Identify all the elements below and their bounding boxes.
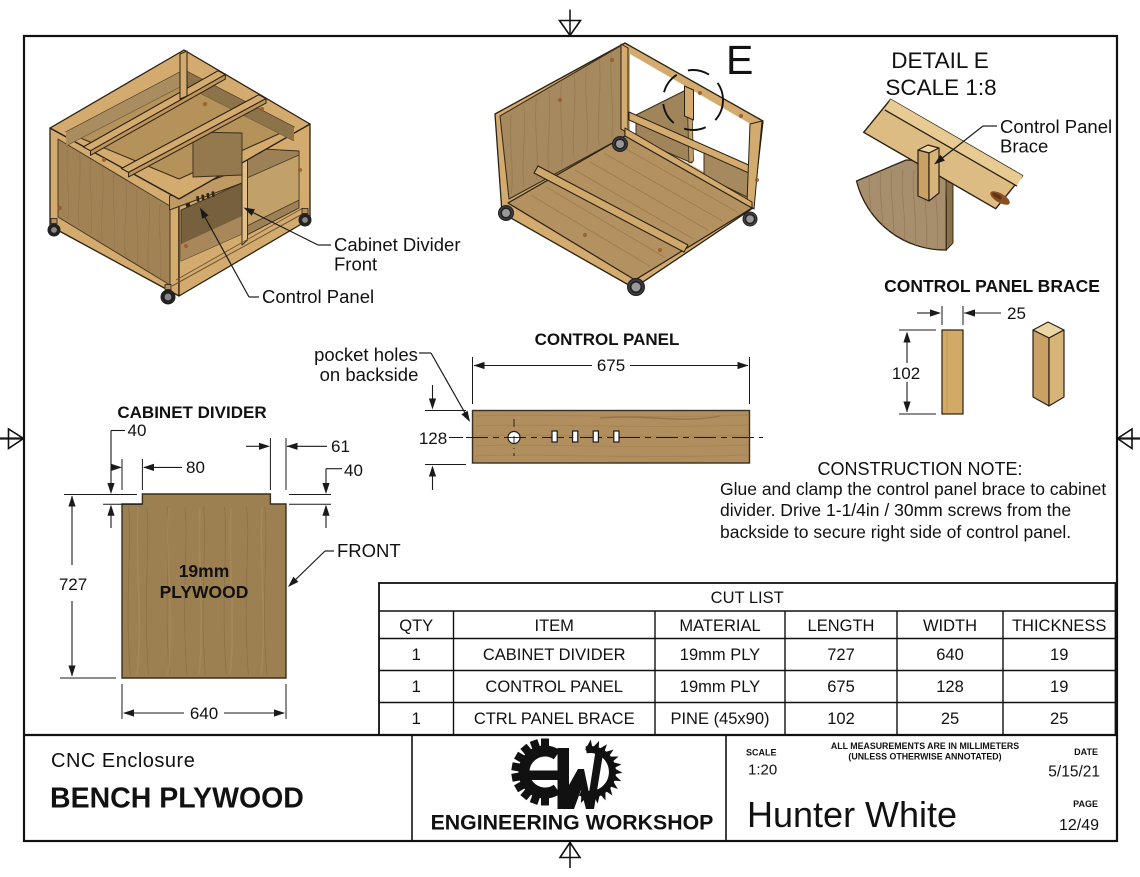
svg-text:SCALE: SCALE xyxy=(746,748,777,758)
svg-text:19: 19 xyxy=(1050,646,1068,664)
svg-text:25: 25 xyxy=(1007,304,1026,323)
svg-text:CONTROL PANEL: CONTROL PANEL xyxy=(535,330,680,349)
svg-text:FRONT: FRONT xyxy=(337,540,401,561)
svg-text:1: 1 xyxy=(412,710,421,728)
svg-text:Hunter White: Hunter White xyxy=(747,794,957,835)
svg-text:40: 40 xyxy=(344,461,363,480)
svg-text:backside to secure right side: backside to secure right side of control… xyxy=(720,522,1071,542)
svg-text:E: E xyxy=(726,37,753,83)
svg-text:LENGTH: LENGTH xyxy=(808,617,875,635)
svg-text:SCALE 1:8: SCALE 1:8 xyxy=(885,75,996,100)
svg-text:25: 25 xyxy=(941,710,959,728)
svg-text:128: 128 xyxy=(936,678,964,696)
svg-text:40: 40 xyxy=(128,421,147,440)
svg-text:1: 1 xyxy=(412,646,421,664)
svg-text:divider. Drive 1-1/4in / 30mm: divider. Drive 1-1/4in / 30mm screws fro… xyxy=(720,500,1071,520)
svg-text:CONTROL PANEL BRACE: CONTROL PANEL BRACE xyxy=(884,276,1100,296)
svg-text:19mm: 19mm xyxy=(179,561,230,581)
svg-text:Control Panel: Control Panel xyxy=(262,286,374,307)
svg-text:Cabinet Divider: Cabinet Divider xyxy=(334,234,460,255)
svg-text:QTY: QTY xyxy=(399,617,433,635)
svg-text:675: 675 xyxy=(827,678,855,696)
svg-text:19mm PLY: 19mm PLY xyxy=(680,646,760,664)
svg-text:CONTROL PANEL: CONTROL PANEL xyxy=(485,678,623,696)
svg-text:727: 727 xyxy=(59,575,87,594)
svg-text:80: 80 xyxy=(186,458,205,477)
svg-text:THICKNESS: THICKNESS xyxy=(1012,617,1106,635)
svg-text:pocket holes: pocket holes xyxy=(314,344,418,365)
svg-text:640: 640 xyxy=(936,646,964,664)
svg-text:25: 25 xyxy=(1050,710,1068,728)
svg-text:PLYWOOD: PLYWOOD xyxy=(160,582,249,602)
svg-text:102: 102 xyxy=(827,710,855,728)
svg-text:61: 61 xyxy=(331,437,350,456)
svg-text:CUT LIST: CUT LIST xyxy=(711,589,784,607)
svg-text:CABINET DIVIDER: CABINET DIVIDER xyxy=(483,646,626,664)
svg-text:DETAIL E: DETAIL E xyxy=(891,48,989,73)
svg-text:727: 727 xyxy=(827,646,855,664)
svg-text:CNC Enclosure: CNC Enclosure xyxy=(51,750,195,772)
svg-text:(UNLESS OTHERWISE ANNOTATED): (UNLESS OTHERWISE ANNOTATED) xyxy=(848,752,1001,762)
svg-text:640: 640 xyxy=(190,704,218,723)
svg-text:CTRL PANEL BRACE: CTRL PANEL BRACE xyxy=(474,710,635,728)
svg-text:ITEM: ITEM xyxy=(534,617,573,635)
svg-text:on backside: on backside xyxy=(320,364,419,385)
svg-text:ALL MEASUREMENTS ARE IN MILLIM: ALL MEASUREMENTS ARE IN MILLIMETERS xyxy=(831,741,1019,751)
svg-text:MATERIAL: MATERIAL xyxy=(679,617,760,635)
svg-text:WIDTH: WIDTH xyxy=(923,617,977,635)
svg-text:ENGINEERING WORKSHOP: ENGINEERING WORKSHOP xyxy=(431,811,714,835)
svg-text:CONSTRUCTION NOTE:: CONSTRUCTION NOTE: xyxy=(818,459,1023,479)
svg-text:CABINET DIVIDER: CABINET DIVIDER xyxy=(117,403,266,422)
svg-text:1: 1 xyxy=(412,678,421,696)
svg-text:12/49: 12/49 xyxy=(1059,817,1099,834)
svg-text:5/15/21: 5/15/21 xyxy=(1048,764,1100,781)
svg-text:DATE: DATE xyxy=(1074,747,1098,757)
svg-text:PINE (45x90): PINE (45x90) xyxy=(670,710,769,728)
svg-text:675: 675 xyxy=(597,356,625,375)
svg-text:BENCH PLYWOOD: BENCH PLYWOOD xyxy=(50,783,304,815)
svg-text:19mm PLY: 19mm PLY xyxy=(680,678,760,696)
svg-text:Glue and clamp the control pan: Glue and clamp the control panel brace t… xyxy=(720,479,1106,499)
svg-text:Control Panel: Control Panel xyxy=(1000,116,1112,137)
svg-text:Front: Front xyxy=(334,254,377,275)
svg-text:128: 128 xyxy=(419,429,447,448)
svg-text:Brace: Brace xyxy=(1000,136,1048,157)
svg-text:1:20: 1:20 xyxy=(748,762,777,779)
svg-text:PAGE: PAGE xyxy=(1073,799,1098,809)
svg-text:19: 19 xyxy=(1050,678,1068,696)
svg-text:102: 102 xyxy=(892,364,920,383)
